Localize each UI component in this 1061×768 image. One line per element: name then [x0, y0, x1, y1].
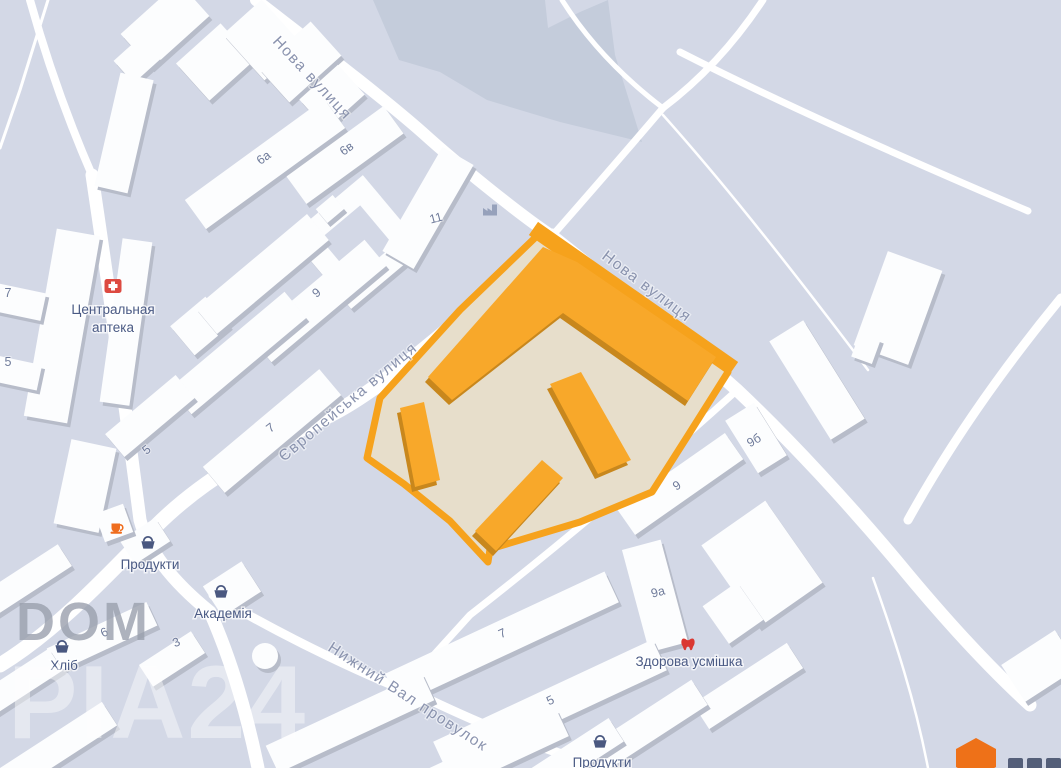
poi-label: аптека: [92, 320, 135, 335]
partial-logo-text: [1008, 758, 1061, 768]
poi-label: Академія: [194, 606, 252, 621]
watermark-text-secondary: РІА24: [8, 645, 307, 761]
poi-label: Здорова усмішка: [635, 654, 742, 669]
watermark-text-primary: DOM: [16, 592, 151, 652]
map-viewport[interactable]: Нова вулиця Нова вулиця Європейська вули…: [0, 0, 1061, 768]
pharmacy-cross-icon: [105, 279, 122, 293]
poi-label: Продукти: [121, 557, 180, 572]
poi-label: Центральная: [71, 302, 154, 317]
house-number: 5: [5, 355, 12, 369]
house-number: 7: [5, 286, 12, 300]
poi-label: Продукти: [573, 755, 632, 768]
